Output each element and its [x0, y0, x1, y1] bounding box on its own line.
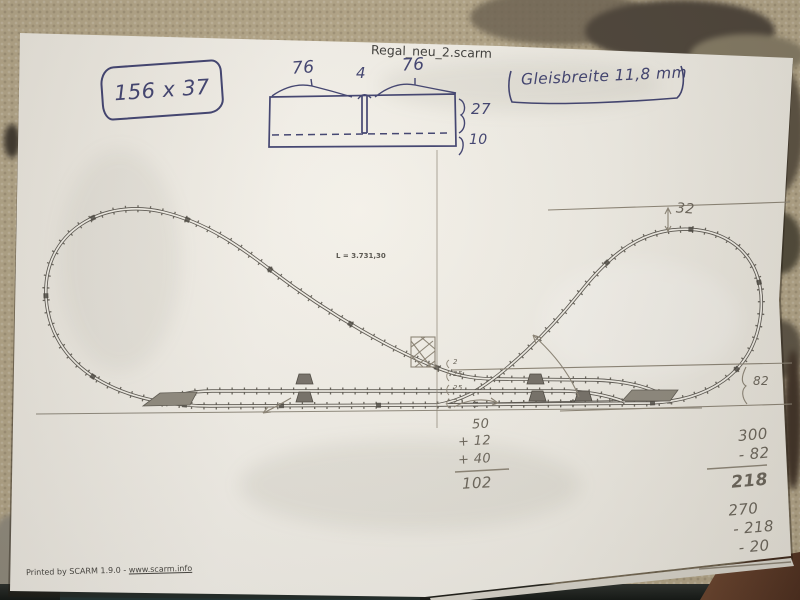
- center-sum-row-1: 50: [472, 417, 490, 433]
- dim-32-label: 32: [675, 200, 695, 217]
- calc1-row-1: 300: [737, 424, 768, 445]
- size-note-text: 156 x 37: [113, 75, 210, 106]
- shelf-dim-76-right: 76: [401, 54, 424, 75]
- calc2-row-2: - 218: [732, 517, 774, 538]
- calc1-result: 218: [730, 470, 768, 493]
- footer-url: www.scarm.info: [129, 564, 193, 575]
- size-note-box: 156 x 37: [99, 59, 224, 121]
- paper-wrinkle: [240, 440, 580, 530]
- dim-82-label: 82: [753, 374, 769, 388]
- shelf-dim-76-left: 76: [291, 57, 315, 79]
- center-sum-row-2: + 12: [458, 433, 492, 450]
- calc2-row-3: - 20: [738, 536, 770, 557]
- right-calc-1: 300 - 82 218: [683, 424, 772, 496]
- center-sum-total: 102: [462, 473, 493, 493]
- right-calc-2: 270 - 218 - 20: [674, 498, 777, 562]
- spacing-label-1: 2: [453, 358, 458, 366]
- center-sum-row-3: + 40: [458, 451, 492, 468]
- paper-wrinkle: [60, 150, 180, 370]
- shelf-dim-4: 4: [356, 64, 366, 82]
- calc2-row-1: 270: [728, 499, 759, 520]
- shelf-dim-27: 27: [471, 100, 491, 118]
- track-length-label: L = 3.731,30: [336, 252, 386, 260]
- shelf-dim-10: 10: [469, 132, 488, 148]
- photo-of-track-plan: Regal_neu_2.scarm L = 3.731,30 Printed b…: [0, 0, 800, 600]
- spacing-label-4: 2: [453, 398, 458, 406]
- paper-wrinkle: [540, 260, 740, 380]
- spacing-label-3: 25: [453, 384, 463, 392]
- calc1-row-2: - 82: [738, 443, 770, 464]
- spacing-label-2: 25: [453, 370, 463, 378]
